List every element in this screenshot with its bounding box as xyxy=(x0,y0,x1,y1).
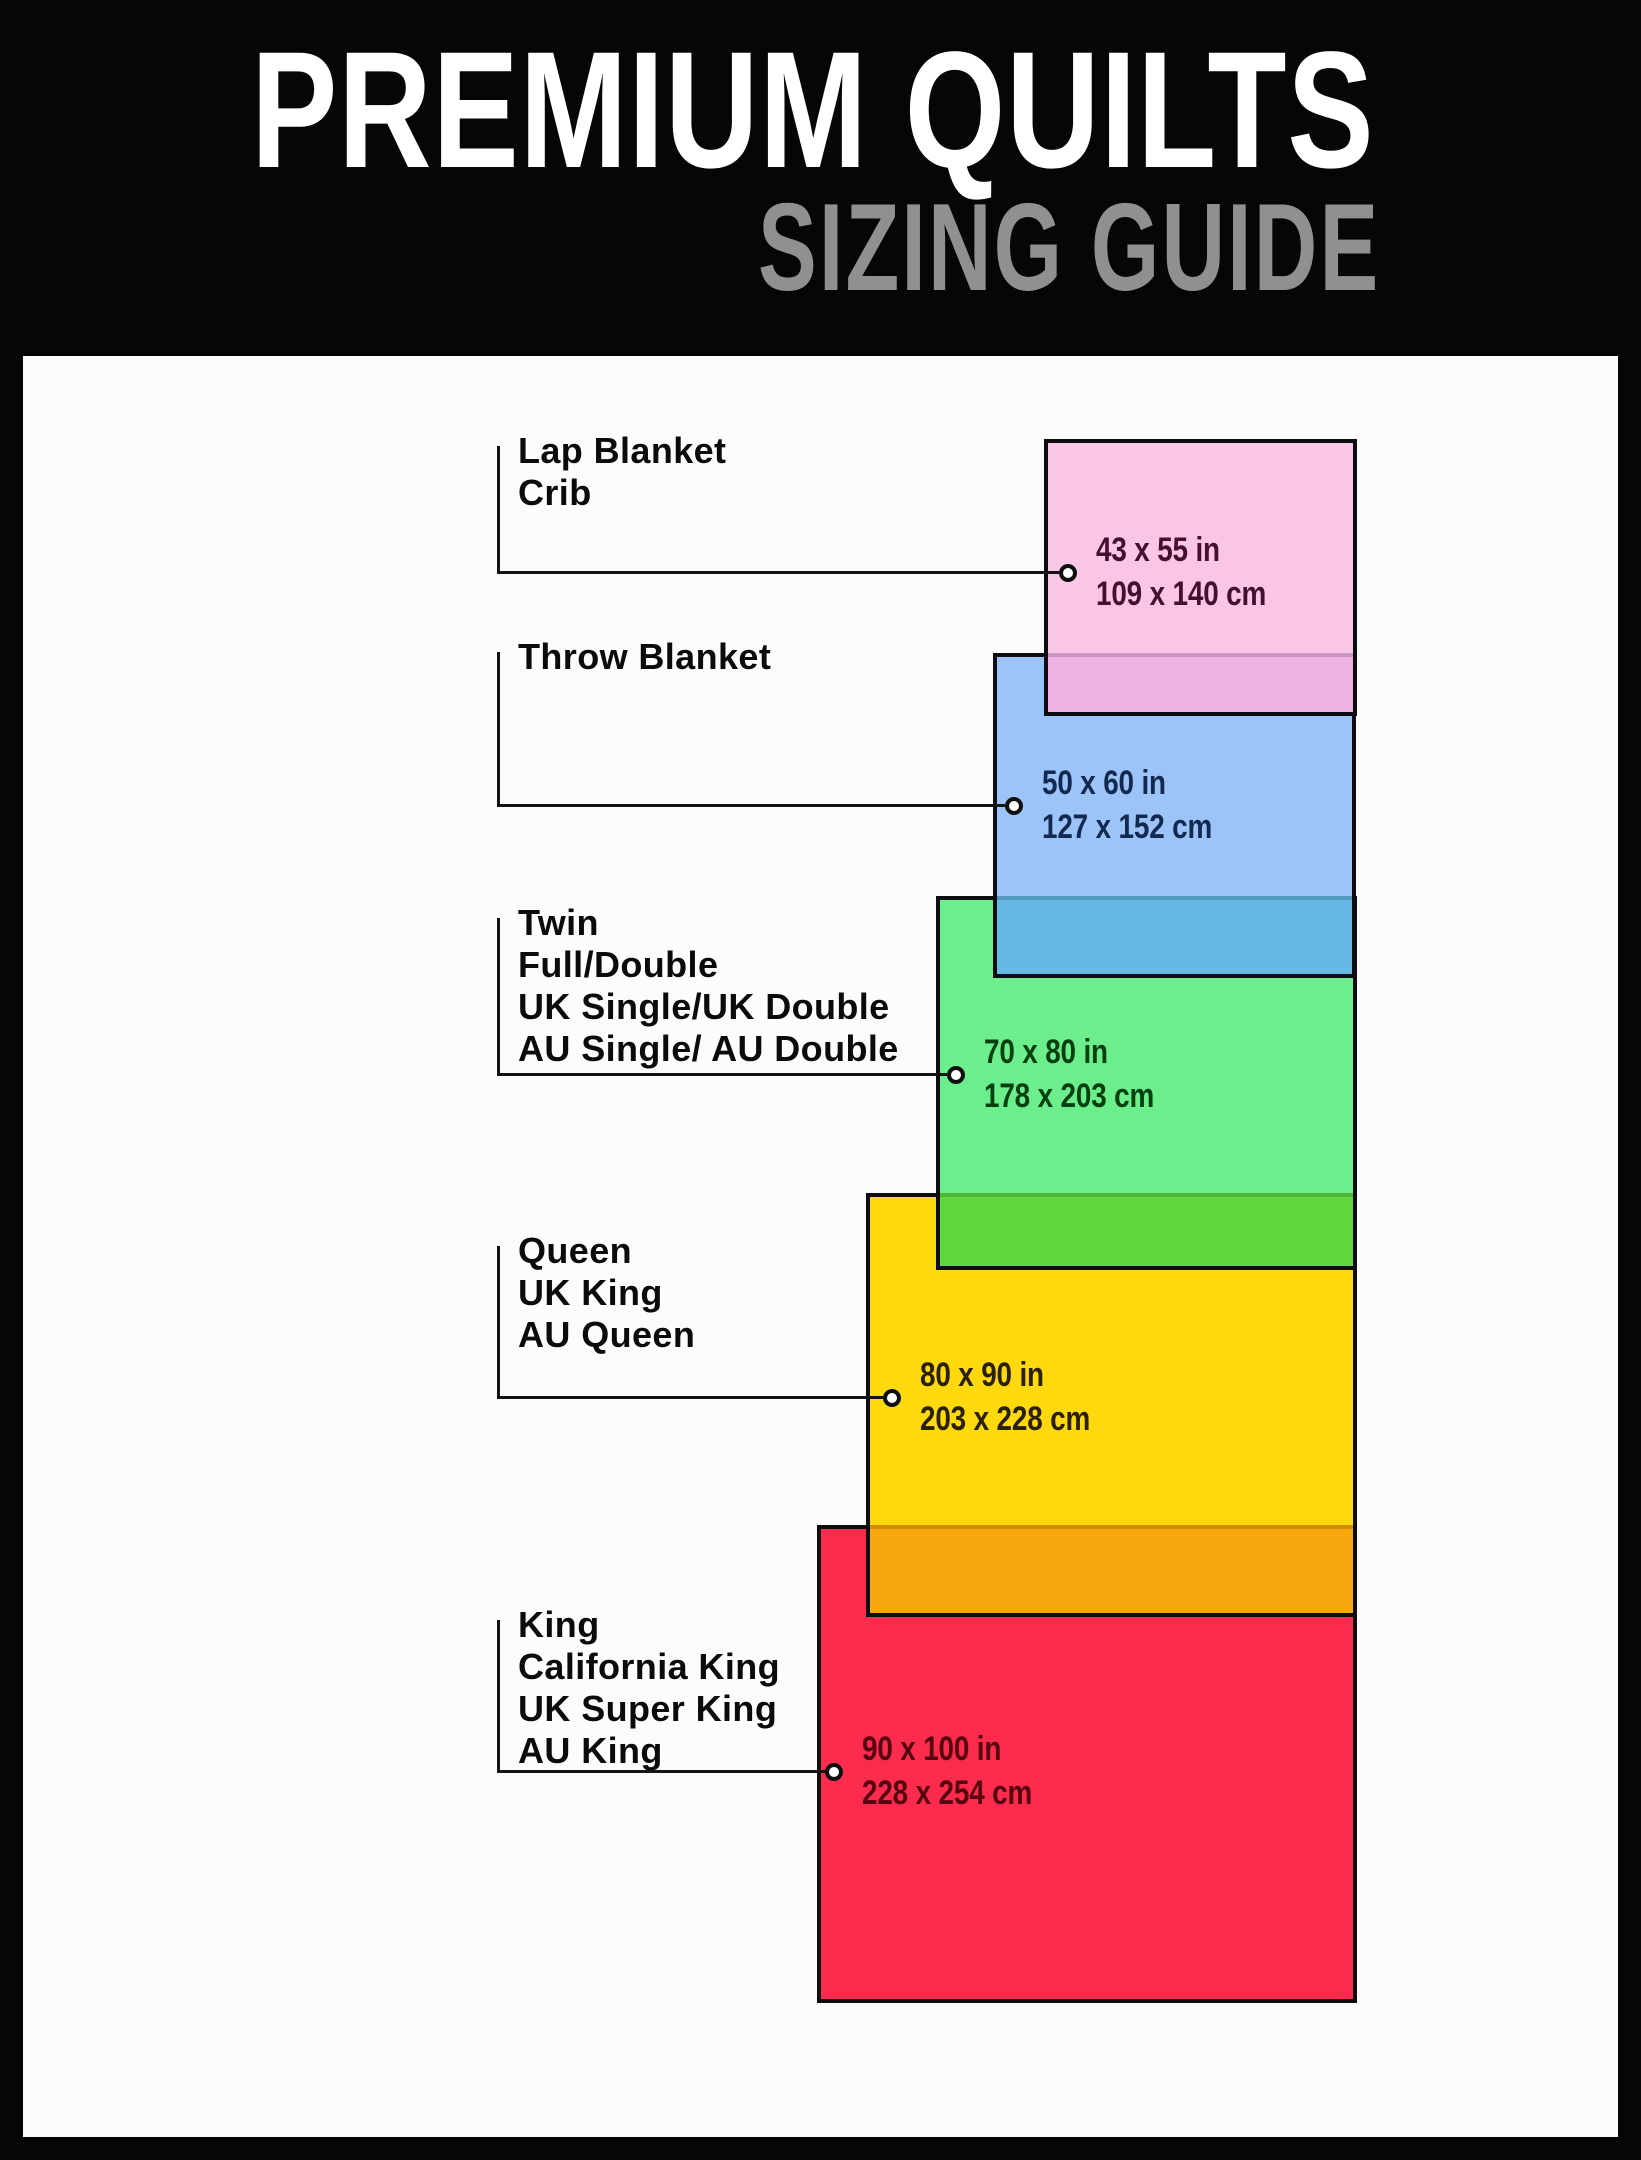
dimension-inches: 90 x 100 in xyxy=(862,1727,1032,1771)
size-label-line: King xyxy=(518,1604,780,1646)
dimension-inches: 70 x 80 in xyxy=(984,1030,1154,1074)
size-label-line: UK Single/UK Double xyxy=(518,986,899,1028)
dimension-cm: 178 x 203 cm xyxy=(984,1074,1154,1118)
dimension-text: 50 x 60 in 127 x 152 cm xyxy=(1042,761,1212,849)
size-label-line: UK Super King xyxy=(518,1688,780,1730)
quilt-overlap-throw-blanket xyxy=(997,896,1352,974)
dimension-cm: 109 x 140 cm xyxy=(1096,572,1266,616)
size-label-line: Lap Blanket xyxy=(518,430,726,472)
sizing-guide-infographic: PREMIUM QUILTS SIZING GUIDE KingCaliforn… xyxy=(0,0,1641,2160)
size-label-line: Twin xyxy=(518,902,899,944)
leader-line xyxy=(497,1770,825,1773)
size-label-line: California King xyxy=(518,1646,780,1688)
dimension-cm: 203 x 228 cm xyxy=(920,1397,1090,1441)
leader-line xyxy=(497,571,1059,574)
dimension-cm: 127 x 152 cm xyxy=(1042,805,1212,849)
leader-line xyxy=(497,1396,883,1399)
leader-line xyxy=(497,1073,947,1076)
dimension-text: 80 x 90 in 203 x 228 cm xyxy=(920,1353,1090,1441)
size-label-lap-blanket-crib: Lap BlanketCrib xyxy=(518,430,726,514)
quilt-overlap-lap-blanket-crib xyxy=(1048,653,1353,712)
leader-bracket-vertical xyxy=(497,652,500,807)
size-label-line: AU Queen xyxy=(518,1314,695,1356)
leader-dot-icon xyxy=(1059,564,1077,582)
leader-dot-icon xyxy=(883,1389,901,1407)
size-label-line: Full/Double xyxy=(518,944,899,986)
leader-line xyxy=(497,804,1005,807)
dimension-inches: 50 x 60 in xyxy=(1042,761,1212,805)
size-label-king: KingCalifornia KingUK Super KingAU King xyxy=(518,1604,780,1772)
dimension-text: 70 x 80 in 178 x 203 cm xyxy=(984,1030,1154,1118)
leader-bracket-vertical xyxy=(497,918,500,1076)
size-label-line: UK King xyxy=(518,1272,695,1314)
size-label-line: Crib xyxy=(518,472,726,514)
dimension-text: 90 x 100 in 228 x 254 cm xyxy=(862,1727,1032,1815)
page-title: PREMIUM QUILTS xyxy=(251,28,1374,194)
quilt-overlap-twin-full-double xyxy=(940,1193,1353,1266)
dimension-cm: 228 x 254 cm xyxy=(862,1771,1032,1815)
size-label-line: Throw Blanket xyxy=(518,636,771,678)
dimension-text: 43 x 55 in 109 x 140 cm xyxy=(1096,528,1266,616)
size-label-twin-full-double: TwinFull/DoubleUK Single/UK DoubleAU Sin… xyxy=(518,902,899,1070)
size-label-line: AU Single/ AU Double xyxy=(518,1028,899,1070)
leader-bracket-vertical xyxy=(497,446,500,574)
leader-dot-icon xyxy=(947,1066,965,1084)
leader-bracket-vertical xyxy=(497,1620,500,1773)
page-subtitle: SIZING GUIDE xyxy=(758,186,1380,310)
size-label-throw-blanket: Throw Blanket xyxy=(518,636,771,678)
size-label-line: Queen xyxy=(518,1230,695,1272)
size-label-line: AU King xyxy=(518,1730,780,1772)
leader-dot-icon xyxy=(825,1763,843,1781)
dimension-inches: 43 x 55 in xyxy=(1096,528,1266,572)
leader-dot-icon xyxy=(1005,797,1023,815)
dimension-inches: 80 x 90 in xyxy=(920,1353,1090,1397)
leader-bracket-vertical xyxy=(497,1246,500,1399)
size-label-queen: QueenUK KingAU Queen xyxy=(518,1230,695,1356)
quilt-overlap-queen xyxy=(870,1525,1353,1613)
